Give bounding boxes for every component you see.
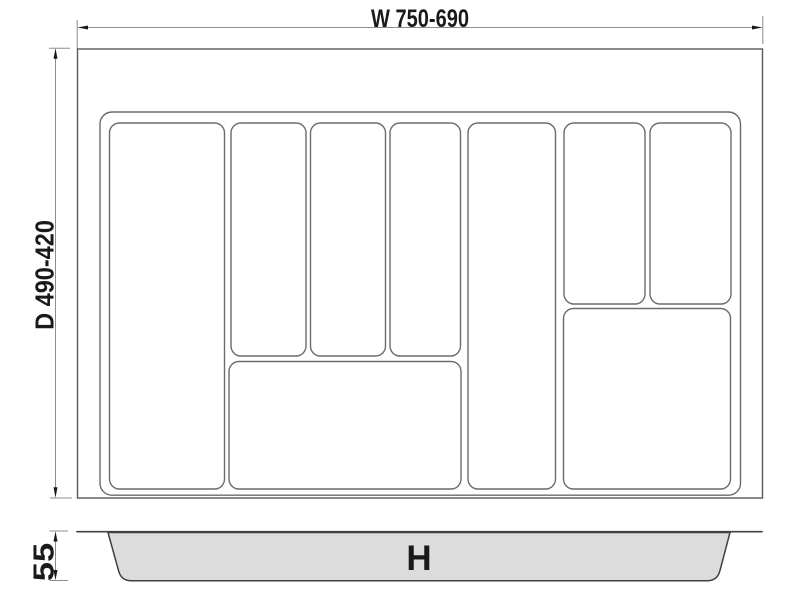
svg-text:D 490-420: D 490-420 — [32, 220, 60, 330]
svg-text:W 750-690: W 750-690 — [371, 4, 469, 33]
svg-text:55: 55 — [27, 543, 59, 581]
svg-text:H: H — [406, 539, 431, 578]
